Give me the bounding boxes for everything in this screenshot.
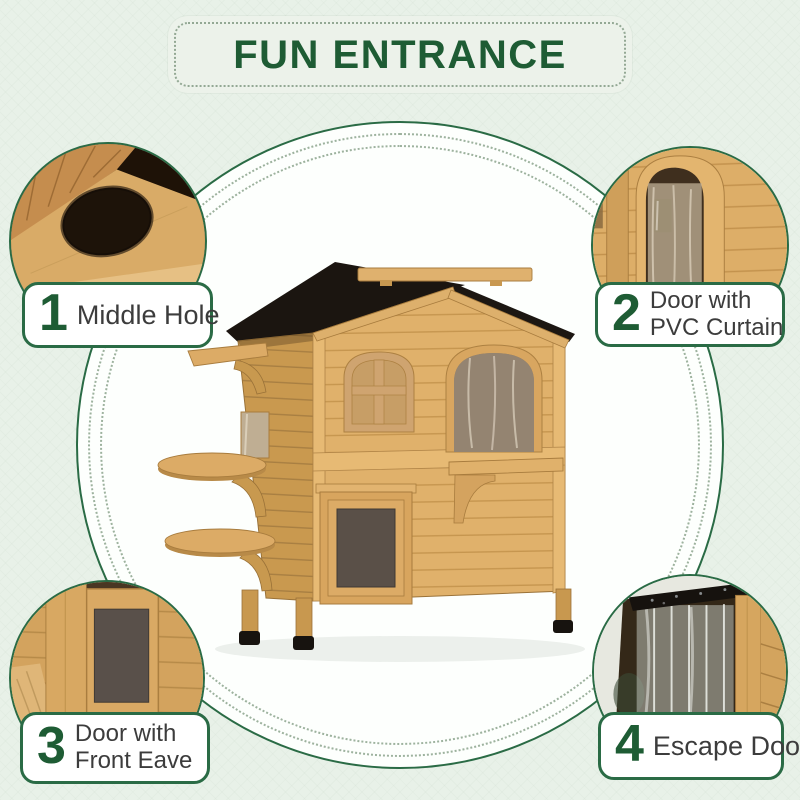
callout-1-label: 1 Middle Hole (22, 282, 213, 348)
callout-1-number: 1 (39, 287, 68, 339)
banner: FUN ENTRANCE (168, 16, 632, 93)
callout-4-number: 4 (615, 718, 644, 770)
callout-4-label: 4 Escape Door (598, 712, 784, 780)
callout-2-text: Door with PVC Curtain (650, 288, 783, 342)
callout-4-text: Escape Door (653, 731, 800, 761)
callout-3-text: Door with Front Eave (75, 721, 192, 775)
banner-title: FUN ENTRANCE (233, 35, 567, 75)
callout-1-text: Middle Hole (77, 300, 220, 330)
callout-3-number: 3 (37, 720, 66, 772)
product-feature-infographic: FUN ENTRANCE (0, 0, 800, 800)
callout-2-label: 2 Door with PVC Curtain (595, 282, 785, 347)
callout-2-number: 2 (612, 287, 641, 339)
callout-3-label: 3 Door with Front Eave (20, 712, 210, 784)
